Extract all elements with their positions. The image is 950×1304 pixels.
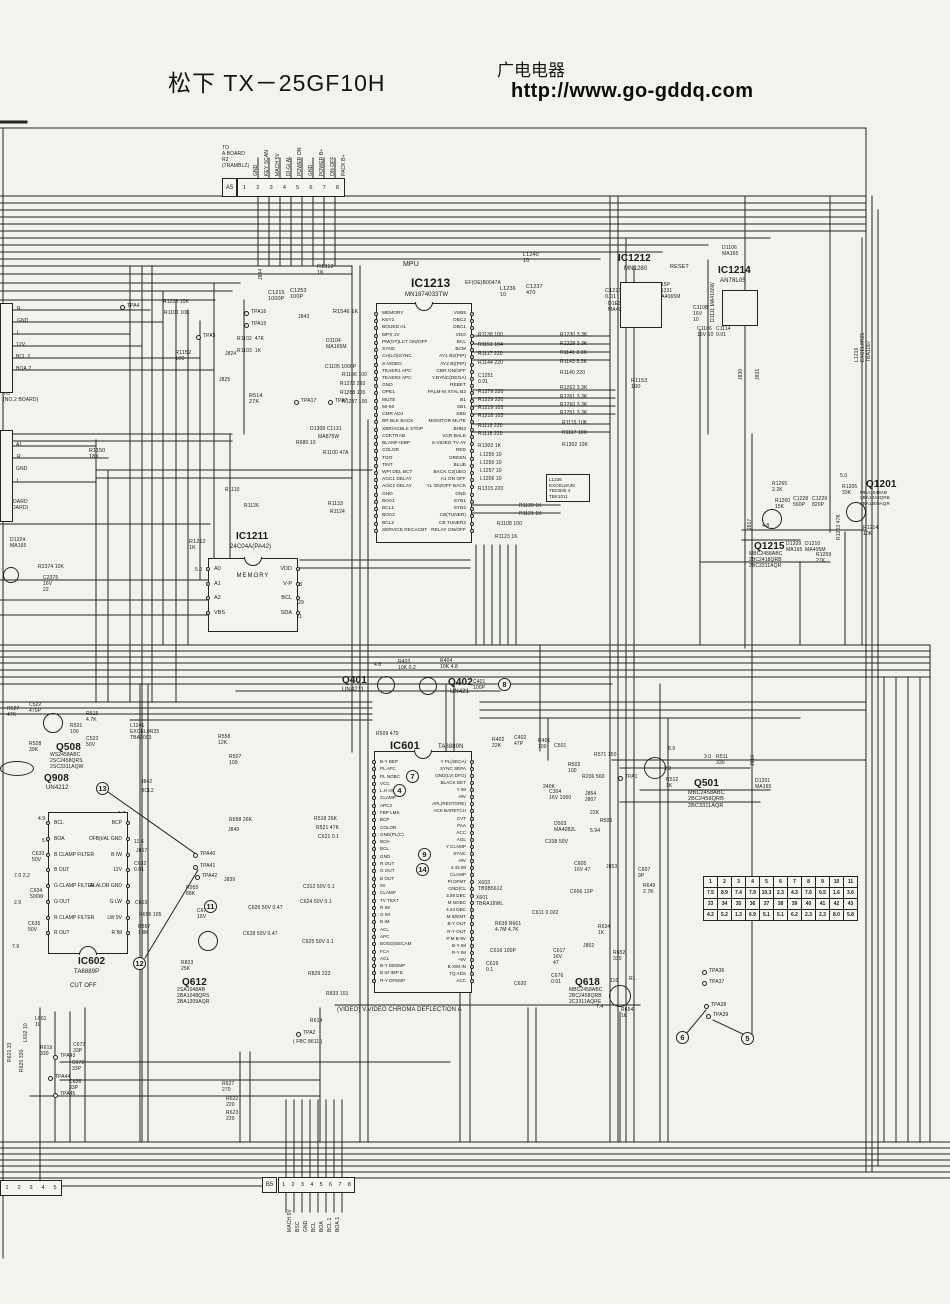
ic-pin-label: A0 xyxy=(214,567,221,573)
ic-pin-dot xyxy=(470,824,474,828)
voltage-cell: 34 xyxy=(718,899,732,910)
schematic-label: R654 1K xyxy=(621,1008,633,1020)
voltage-cell: 5.8 xyxy=(844,910,858,921)
schematic-label: 5.94 xyxy=(590,829,600,835)
ic-pin-dot xyxy=(374,319,378,323)
ic-pin-dot xyxy=(470,944,474,948)
ic-pin-dot xyxy=(470,852,474,856)
ic-pin-label: COLOR xyxy=(382,449,399,454)
schematic-label: J831 xyxy=(756,369,762,380)
callout-number: 12 xyxy=(133,957,146,970)
ic-pin-label: GND xyxy=(382,384,393,389)
test-point xyxy=(196,335,201,340)
ic-pin-dot xyxy=(374,312,378,316)
voltage-cell: 8.0 xyxy=(830,910,844,921)
schematic-label: R521 47K xyxy=(316,826,339,832)
top-board-connector: 12345678 xyxy=(237,178,345,197)
schematic-label: C611 0.022 xyxy=(532,911,558,917)
voltage-cell: 7.6 xyxy=(802,888,816,899)
schematic-label: R1108 100 xyxy=(497,522,522,528)
schematic-label: C619 0.1 xyxy=(486,962,498,974)
ic-pin-label: +9V xyxy=(458,859,466,864)
voltage-cell: 7.9 xyxy=(746,888,760,899)
ic-pin-label: R IM xyxy=(111,931,122,936)
ic-pin-dot xyxy=(372,877,376,881)
schematic-label: TA8889P xyxy=(74,969,99,976)
test-point xyxy=(193,853,198,858)
schematic-label: D503 MA4082L xyxy=(554,822,576,834)
voltage-cell: 2.3 xyxy=(774,888,788,899)
ic-pin-label: BOA2 xyxy=(382,514,395,519)
ic-pin-label: TINT xyxy=(382,464,393,469)
ic-notch xyxy=(415,302,433,311)
schematic-label: MBC2458ABC 2BC2458QRB 2BC3311AQR xyxy=(688,790,725,809)
ic-pin-dot xyxy=(372,847,376,851)
ic-pin-dot xyxy=(206,596,210,600)
schematic-label: J844 xyxy=(259,269,265,280)
ic-pin-dot xyxy=(470,972,474,976)
ic-pin-label: FCA xyxy=(380,950,389,955)
ic-pin-dot xyxy=(46,821,50,825)
callout-number: 6 xyxy=(676,1031,689,1044)
schematic-label: R1303 1K xyxy=(478,444,501,450)
test-point-label: TPA42 xyxy=(202,874,217,880)
schematic-label: R2374 10K xyxy=(38,565,64,571)
ic-pin-label: Y CLAMP xyxy=(446,845,466,850)
voltage-cell: 2 xyxy=(718,877,732,888)
ic-pin-label: OPE1 xyxy=(382,391,395,396)
ic-pin-dot xyxy=(470,866,474,870)
ic-pin-dot xyxy=(372,869,376,873)
test-point xyxy=(244,311,249,316)
ic-pin-label: CLAMP xyxy=(380,891,396,896)
ic-pin-label: PM(OT)LCT ON/OFF xyxy=(382,341,427,346)
ic-pin-dot xyxy=(374,370,378,374)
wire-label: GND xyxy=(17,319,28,325)
connector-pin-number: 1 xyxy=(238,185,251,191)
ic-pin-label: MEMORY xyxy=(382,312,404,317)
connector-pin-label: GND xyxy=(254,165,260,176)
ic-block-ic1212 xyxy=(620,282,662,328)
test-point xyxy=(706,1014,711,1019)
ic-pin-label: VCR BALE xyxy=(442,435,466,440)
ic-pin-dot xyxy=(374,478,378,482)
connector-pin-label: BSC xyxy=(296,1221,302,1232)
ic-pin-label: YL ON/OFF BACK xyxy=(426,485,466,490)
schematic-label: 7.0 2.2 xyxy=(14,874,30,880)
schematic-label: C402 47P xyxy=(514,736,526,748)
schematic-label: R649 2.7K xyxy=(643,884,655,896)
voltage-cell: 0.5 xyxy=(816,888,830,899)
ic-pin-dot xyxy=(470,930,474,934)
schematic-label: R1315 220 xyxy=(478,487,503,493)
schematic-label: RESET xyxy=(670,264,689,270)
ic-pin-label: B CLAMP FILTER xyxy=(54,853,94,858)
ic-pin-dot xyxy=(126,916,130,920)
schematic-label: 22K xyxy=(590,811,599,817)
voltage-cell: 37 xyxy=(760,899,774,910)
connector-pin-label: MACH 5V xyxy=(288,1209,294,1232)
voltage-cell: 6 xyxy=(774,877,788,888)
voltage-cell: 2.3 xyxy=(816,910,830,921)
ic-pin-label: ACC xyxy=(456,831,466,836)
ic-pin-label: PAA xyxy=(457,824,466,829)
ic-pin-dot xyxy=(296,596,300,600)
ic-pin-label: CH(LO)SYNC xyxy=(382,355,412,360)
ic-pin-dot xyxy=(470,529,474,533)
schematic-label: L1236 10 xyxy=(500,286,516,299)
voltage-cell: 6.9 xyxy=(746,910,760,921)
ic-pin-label: GND(CL xyxy=(448,887,466,892)
ic-pin-label: R-Y DFEMP xyxy=(380,979,405,984)
schematic-label: J857 xyxy=(136,849,147,855)
ic-pin-dot xyxy=(372,964,376,968)
ic-pin-label: P M B-9V xyxy=(446,937,466,942)
bottom-left-connector: 12345 xyxy=(0,1180,62,1196)
ic-pin-dot xyxy=(374,377,378,381)
connector-pin-label: POWER ON xyxy=(298,147,304,176)
ic-pin-label: VDO xyxy=(456,334,466,339)
schematic-label: R1118 220 xyxy=(478,432,503,438)
schematic-label: R627 270 xyxy=(222,1082,234,1094)
ic-pin-dot xyxy=(374,435,378,439)
ic-pin-dot xyxy=(126,853,130,857)
ic-pin-dot xyxy=(372,796,376,800)
ic-pin-dot xyxy=(470,760,474,764)
schematic-label: MPU xyxy=(403,261,419,269)
connector-pin-number: 4 xyxy=(37,1185,49,1191)
ic-pin-dot xyxy=(374,522,378,526)
schematic-label: R619 330 xyxy=(40,1046,52,1058)
ic-pin-label: 3.58 DBC xyxy=(446,894,466,899)
ic-pin-label: R IM xyxy=(380,906,390,911)
ic-pin-label: BOA xyxy=(54,837,65,842)
schematic-label: 3.0 xyxy=(704,755,711,761)
schematic-label: R1151 104 xyxy=(478,343,503,349)
schematic-label: R1100 47A xyxy=(323,451,349,457)
ic-pin-dot xyxy=(372,913,376,917)
schematic-label: R527 47K xyxy=(7,707,19,719)
ic-pin-label: AGL xyxy=(457,838,466,843)
schematic-label: R1230 3.3K xyxy=(560,333,587,339)
schematic-label: 2.9 xyxy=(14,901,21,907)
schematic-label: C616 100P xyxy=(490,949,516,955)
schematic-label: 11.6 xyxy=(134,840,144,846)
schematic-label: 7.4 xyxy=(596,1005,603,1011)
ic-pin-label: AY1 B2(PIP) xyxy=(439,355,466,360)
schematic-label: L602 10 xyxy=(24,1023,30,1042)
ic-pin-dot xyxy=(372,811,376,815)
schematic-label: R1261 3.3K xyxy=(560,395,587,401)
ic-pin-label: S-VIDEO TV AY xyxy=(432,442,466,447)
schematic-label: C522 470P xyxy=(29,703,41,715)
schematic-label: 8.9 xyxy=(668,747,675,753)
ic-pin-dot xyxy=(470,845,474,849)
test-point-label: TPA16 xyxy=(251,310,266,316)
bottom-board-connector-tag: B5 xyxy=(262,1177,277,1193)
voltage-cell: 3.6 xyxy=(844,888,858,899)
voltage-cell: 5.2 xyxy=(718,910,732,921)
test-point xyxy=(48,1076,53,1081)
ic-pin-dot xyxy=(46,931,50,935)
ic-pin-label: M NOBC xyxy=(448,901,466,906)
schematic-label: J817 xyxy=(748,519,754,530)
ic-pin-label: SBD xyxy=(456,413,466,418)
ic-notch xyxy=(244,557,262,566)
ic-pin-dot xyxy=(296,582,300,586)
schematic-label: C672 33P xyxy=(72,1061,84,1073)
ic-pin-label: OBC2 xyxy=(453,319,466,324)
voltage-cell: 7 xyxy=(788,877,802,888)
test-point-label: TPA15 xyxy=(251,322,266,328)
schematic-label: L601 10 xyxy=(35,1017,47,1029)
schematic-label: R658 26K xyxy=(229,818,252,824)
schematic-label: R1133 xyxy=(328,502,343,508)
schematic-label: R1123 1K xyxy=(495,535,518,541)
schematic-label: J854 J807 xyxy=(585,792,596,804)
ic-pin-dot xyxy=(372,840,376,844)
ic-pin-label: SERVICE RECACBT xyxy=(382,529,427,534)
schematic-label: R614 xyxy=(310,1019,322,1025)
ic-pin-dot xyxy=(206,611,210,615)
schematic-label: C312 50V 0.1 xyxy=(303,885,335,891)
ic-pin-label: B OUT xyxy=(380,877,394,882)
ic-pin-dot xyxy=(374,428,378,432)
ic-pin-label: CVT xyxy=(457,817,466,822)
ic-pin-label: VDD xyxy=(280,567,292,573)
ic-pin-label: R-Y IM xyxy=(452,951,466,956)
ic-pin-label: BCL2 xyxy=(382,522,394,527)
schematic-page: 松下 TX－25GF10H 广电电器 http://www.go-gddq.co… xyxy=(0,0,950,1304)
voltage-cell: 39 xyxy=(788,899,802,910)
schematic-label: R206 560 xyxy=(582,775,605,781)
callout-number: 11 xyxy=(204,900,217,913)
schematic-label: R1115 10K xyxy=(562,421,587,427)
schematic-label: C501 xyxy=(554,744,566,750)
schematic-label: C628 50V 0.47 xyxy=(243,932,278,938)
schematic-label: J852 xyxy=(583,944,594,950)
voltage-cell: 1.6 xyxy=(830,888,844,899)
ic-pin-label: VBS xyxy=(214,611,225,617)
schematic-label: 24C04A(PA42) xyxy=(230,544,271,551)
schematic-label: C1237 470 xyxy=(526,284,543,297)
voltage-cell: 10 xyxy=(830,877,844,888)
schematic-label: R639 R661 4.7M 4.7K xyxy=(495,922,521,934)
schematic-label: C606 12P xyxy=(570,890,593,896)
schematic-label: C1215 1000P xyxy=(268,290,285,303)
callout-number: 9 xyxy=(418,848,431,861)
schematic-label: R1102 47K xyxy=(237,337,264,343)
schematic-label: R1260 15K xyxy=(775,499,790,511)
transistor-symbol xyxy=(609,985,631,1007)
test-point xyxy=(53,1093,58,1098)
ic-pin-label: A1 xyxy=(214,582,221,588)
ic-pin-dot xyxy=(372,884,376,888)
voltage-cell: 43 xyxy=(844,899,858,910)
schematic-label: IC1213 xyxy=(411,276,450,290)
ic-pin-label: BOA xyxy=(380,840,390,845)
schematic-label: R1120 1K xyxy=(519,504,542,510)
ic-pin-label: B1 xyxy=(460,399,466,404)
schematic-label: R621 33 xyxy=(8,1042,14,1062)
connector-pin-number: 3 xyxy=(25,1185,37,1191)
test-point-label: TPA1 xyxy=(625,775,638,781)
transistor-symbol xyxy=(198,931,218,951)
connector-pin-label: BOA xyxy=(320,1221,326,1232)
ic-pin-label: PI DFMT xyxy=(448,880,466,885)
ic-pin-dot xyxy=(374,391,378,395)
test-point xyxy=(618,776,623,781)
test-point xyxy=(244,323,249,328)
schematic-label: R1126 xyxy=(244,504,259,510)
schematic-label: MBC2458ABC 2BC2418QRB 2BC3311AQR xyxy=(749,552,783,570)
voltage-cell: 35 xyxy=(732,899,746,910)
connector-pin-number: 4 xyxy=(307,1182,316,1188)
ic-pin-label: B IM xyxy=(380,920,389,925)
ic-pin-label: GND(PL(C) xyxy=(380,833,404,838)
connector-pin-number: 1 xyxy=(279,1182,288,1188)
ic-pin-label: BHB3 xyxy=(453,428,466,433)
ic-pin-dot xyxy=(470,831,474,835)
ic-pin-dot xyxy=(374,529,378,533)
ic-pin-dot xyxy=(470,334,474,338)
ic-pin-label: SB1 xyxy=(457,406,466,411)
ic-pin-label: AGL xyxy=(380,957,389,962)
ic-pin-dot xyxy=(374,326,378,330)
schematic-label: IC602 xyxy=(78,956,105,968)
connector-pin-label: DI-GI AL xyxy=(287,156,293,176)
transistor-symbol xyxy=(3,567,19,583)
ic-pin-dot xyxy=(470,341,474,345)
schematic-label: X601 TBRA16WL xyxy=(476,896,503,908)
ic-pin-label: S-VIDEO xyxy=(382,363,402,368)
ic-pin-dot xyxy=(372,826,376,830)
ic-pin-label: OBC1 xyxy=(453,326,466,331)
ic-pin-label: GND(LVI DFO) xyxy=(435,774,466,779)
ic-pin-label: ACL xyxy=(380,928,389,933)
ic-pin-label: REBET xyxy=(450,384,466,389)
connector-pin-label: POWER B+ xyxy=(320,149,326,176)
voltage-cell: 40 xyxy=(802,899,816,910)
schematic-label: C1251 0.01 xyxy=(478,374,493,386)
ic-pin-dot xyxy=(374,442,378,446)
ic-pin-label: BCL1 xyxy=(382,507,394,512)
callout-number: 8 xyxy=(498,678,511,691)
schematic-label: L1255 10 xyxy=(480,453,502,459)
schematic-label: D1104 MA165M xyxy=(326,339,347,351)
schematic-label: R515 4.7K xyxy=(86,712,98,724)
ic-pin-dot xyxy=(372,789,376,793)
schematic-label: R401 100 xyxy=(538,739,550,751)
ic-pin-label: BCL xyxy=(54,821,64,826)
schematic-label: R403 10K 0.2 xyxy=(398,660,416,672)
ic-pin-dot xyxy=(374,363,378,367)
test-point xyxy=(294,400,299,405)
schematic-label: R512 1K xyxy=(666,778,678,790)
ic-pin-label: BOUED A1 xyxy=(382,326,406,331)
ic-pin-dot xyxy=(470,428,474,432)
ic-notch xyxy=(79,946,97,955)
schematic-label: R1262 3.3K xyxy=(560,386,587,392)
schematic-label: R1119 220 xyxy=(478,424,503,430)
ic-pin-dot xyxy=(374,334,378,338)
ic-pin-label: R-Y OUT xyxy=(447,930,466,935)
ic-pin-dot xyxy=(296,567,300,571)
connector-pin-label: ON OFF xyxy=(331,157,337,177)
ic-pin-dot xyxy=(470,377,474,381)
ic-pin-label: SYNC xyxy=(453,852,466,857)
schematic-label: C635 50V xyxy=(28,922,40,934)
voltage-cell: 5 xyxy=(760,877,774,888)
schematic-label: R1228 10K xyxy=(163,300,189,306)
schematic-label: R1260 3.3K xyxy=(560,403,587,409)
schematic-label: C304 16V 1000 xyxy=(549,790,571,802)
ic-pin-dot xyxy=(372,957,376,961)
ic-pin-label: 50-60 xyxy=(382,406,394,411)
ic-pin-dot xyxy=(126,837,130,841)
schematic-label: 116 xyxy=(610,979,618,985)
ic-pin-dot xyxy=(374,420,378,424)
schematic-label: C632 0.01 xyxy=(134,862,146,874)
voltage-cell: 8.9 xyxy=(718,888,732,899)
test-point-label: TPA7 xyxy=(335,399,348,405)
ic-pin-dot xyxy=(470,500,474,504)
connector-pin-label: BCL xyxy=(312,1222,318,1232)
test-point-label: TPA39 xyxy=(713,1013,728,1019)
schematic-label: R829 223 xyxy=(308,972,331,978)
ic-pin-label: BACK C2(UEO xyxy=(433,471,466,476)
schematic-label: C401 100P xyxy=(473,680,485,692)
schematic-label: MN1874033TW xyxy=(405,292,448,299)
schematic-label: R1144 220 xyxy=(478,361,503,367)
schematic-label: Q908 xyxy=(44,773,69,785)
ic-pin-dot xyxy=(470,838,474,842)
ic-pin-label: BCM xyxy=(455,348,466,353)
schematic-label: R1288 100 xyxy=(340,391,365,397)
connector-pin-number: 8 xyxy=(345,1182,354,1188)
schematic-label: C1105 1000P xyxy=(325,365,356,371)
test-point-label: TPA44 xyxy=(55,1075,70,1081)
ic-pin-label: 12V xyxy=(113,868,122,873)
schematic-label: R1219 103 xyxy=(478,406,503,412)
schematic-label: R634 1K xyxy=(598,925,610,937)
left-board-connector xyxy=(0,430,13,522)
schematic-label: R1124 xyxy=(330,510,345,516)
schematic-label: R502 100 xyxy=(568,763,580,775)
component-label-box: L1236 EXCEL8A35 TBCB30 4 TBK1011 xyxy=(546,474,590,502)
voltage-cell: 2.3 xyxy=(802,910,816,921)
ic-pin-label: G OUT xyxy=(380,869,395,874)
connector-pin-number: 6 xyxy=(326,1182,335,1188)
ic-pin-dot xyxy=(206,582,210,586)
schematic-label: R1205 33K xyxy=(842,485,857,497)
schematic-label: C1114 0.01 xyxy=(716,327,731,339)
test-point xyxy=(702,981,707,986)
ic-pin-label: WPI DEL BCT xyxy=(382,471,412,476)
ic-pin-label: OFB(I/AL GND xyxy=(89,837,122,842)
schematic-label: MA875W xyxy=(318,435,339,441)
wire-label: L xyxy=(17,331,20,337)
ic-pin-label: G CLAMP FILTER xyxy=(54,884,95,889)
ic-pin-label: CB(TUNER) xyxy=(440,514,466,519)
wire-label: L xyxy=(17,479,20,485)
schematic-label: C624 50V 0.1 xyxy=(300,900,332,906)
ic-pin-label: TOO xyxy=(382,457,392,462)
ic-pin-label: BOGD(SECAM xyxy=(380,942,411,947)
schematic-label: C605 16V 47 xyxy=(574,862,590,874)
ic-pin-dot xyxy=(372,920,376,924)
schematic-label: MBA1048AB 2BA1048QRB 2BA1309AQR xyxy=(860,490,890,506)
